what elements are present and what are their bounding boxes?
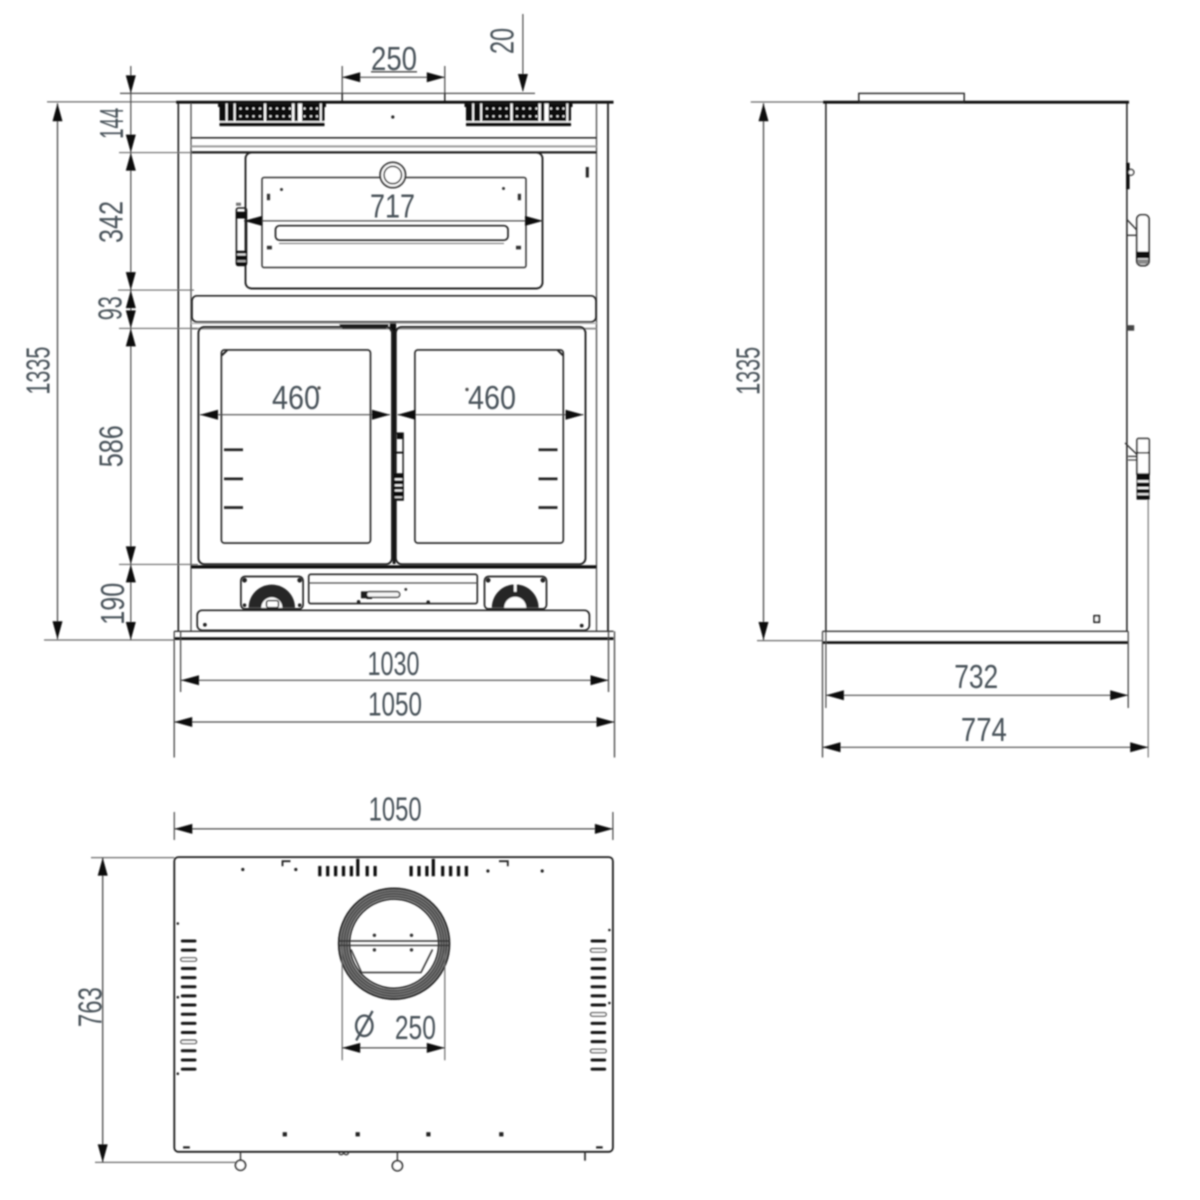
svg-text:93: 93 [92, 296, 129, 320]
svg-text:190: 190 [94, 583, 131, 625]
svg-text:1050: 1050 [368, 686, 422, 723]
svg-text:144: 144 [93, 108, 130, 139]
svg-text:717: 717 [370, 188, 415, 225]
svg-text:732: 732 [954, 658, 998, 695]
svg-text:586: 586 [92, 425, 129, 467]
svg-text:342: 342 [93, 201, 130, 243]
svg-text:1050: 1050 [369, 790, 422, 827]
svg-text:763: 763 [71, 987, 108, 1027]
svg-text:774: 774 [961, 711, 1007, 748]
svg-text:20: 20 [484, 28, 521, 54]
svg-text:1335: 1335 [729, 347, 766, 395]
svg-text:1030: 1030 [368, 645, 420, 682]
svg-text:460: 460 [468, 379, 516, 416]
svg-text:1335: 1335 [20, 347, 57, 395]
svg-text:460: 460 [272, 379, 320, 416]
svg-text:250: 250 [395, 1009, 436, 1046]
